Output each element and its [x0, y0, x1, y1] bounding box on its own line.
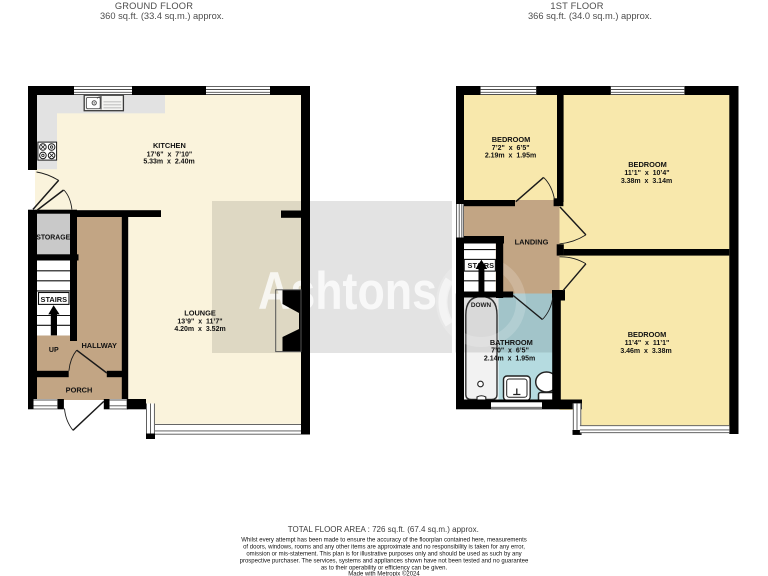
svg-text:11’1" x 10’4": 11’1" x 10’4" [624, 170, 669, 177]
svg-text:5.33m x 2.40m: 5.33m x 2.40m [143, 159, 194, 166]
svg-text:11’4" x 11’1": 11’4" x 11’1" [625, 340, 670, 347]
svg-text:13’9" x 11’7": 13’9" x 11’7" [177, 319, 222, 326]
svg-text:Made with Metropix ©2024: Made with Metropix ©2024 [348, 570, 420, 576]
svg-text:LOUNGE: LOUNGE [184, 308, 216, 317]
svg-text:17’6" x 7’10": 17’6" x 7’10" [147, 152, 193, 159]
svg-text:4.20m x 3.52m: 4.20m x 3.52m [174, 326, 225, 333]
svg-text:1ST FLOOR: 1ST FLOOR [550, 1, 603, 11]
svg-text:TOTAL FLOOR AREA : 726 sq.ft.: TOTAL FLOOR AREA : 726 sq.ft. (67.4 sq.m… [288, 525, 479, 534]
svg-text:UP: UP [49, 347, 59, 354]
svg-text:2.19m x 1.95m: 2.19m x 1.95m [485, 153, 536, 160]
svg-text:HALLWAY: HALLWAY [81, 341, 117, 350]
svg-text:2.14m x 1.95m: 2.14m x 1.95m [484, 355, 535, 362]
svg-text:7’2" x 6’5": 7’2" x 6’5" [492, 145, 530, 152]
svg-text:LANDING: LANDING [515, 238, 549, 247]
svg-text:BEDROOM: BEDROOM [628, 330, 667, 339]
svg-text:360 sq.ft. (33.4 sq.m.) approx: 360 sq.ft. (33.4 sq.m.) approx. [100, 11, 224, 21]
svg-text:DOWN: DOWN [471, 302, 492, 309]
svg-text:STAIRS: STAIRS [41, 295, 68, 304]
svg-text:7’0" x 6’5": 7’0" x 6’5" [491, 347, 529, 354]
svg-text:Whilst every attempt has been: Whilst every attempt has been made to en… [241, 537, 527, 543]
svg-text:KITCHEN: KITCHEN [153, 141, 186, 150]
svg-text:prospective purchaser. The ser: prospective purchaser. The services, sys… [240, 559, 529, 565]
svg-text:366 sq.ft. (34.0 sq.m.) approx: 366 sq.ft. (34.0 sq.m.) approx. [528, 11, 652, 21]
svg-text:BEDROOM: BEDROOM [628, 160, 667, 169]
svg-text:BEDROOM: BEDROOM [492, 135, 531, 144]
svg-text:PORCH: PORCH [66, 386, 93, 395]
svg-text:3.38m x 3.14m: 3.38m x 3.14m [621, 178, 672, 185]
svg-text:3.46m x 3.38m: 3.46m x 3.38m [620, 348, 671, 355]
svg-text:omission or mis-statement. Thi: omission or mis-statement. This plan is … [246, 552, 521, 558]
svg-text:GROUND FLOOR: GROUND FLOOR [115, 1, 193, 11]
svg-text:STORAGE: STORAGE [36, 235, 70, 242]
svg-text:BATHROOM: BATHROOM [490, 338, 533, 347]
svg-text:of doors, windows, rooms and a: of doors, windows, rooms and any other i… [243, 544, 525, 550]
